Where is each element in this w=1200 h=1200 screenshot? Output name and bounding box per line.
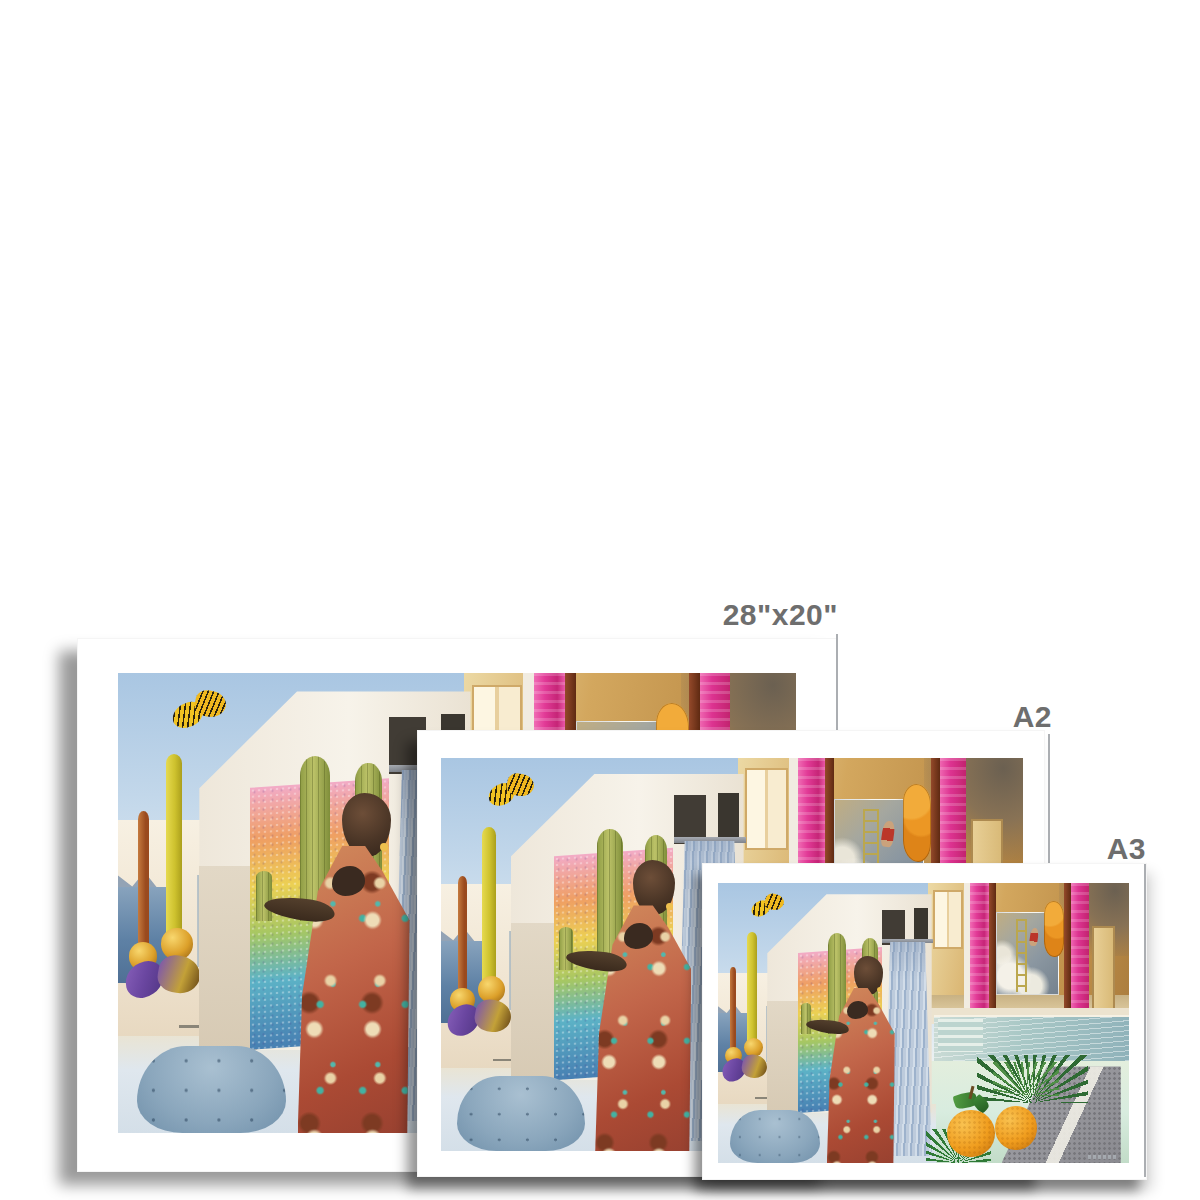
cactus-small (801, 1003, 811, 1034)
warm-window (745, 768, 788, 851)
yellow-candle (747, 932, 757, 1050)
artist-signature (1088, 1155, 1117, 1159)
purple-butterfly (447, 1000, 511, 1043)
purple-butterfly-wing-right (472, 997, 513, 1035)
pink-pillar-right (1071, 883, 1089, 1016)
cactus-small (559, 927, 573, 970)
warm-window (933, 890, 963, 949)
palm-fronds-light (993, 1062, 1059, 1096)
blue-tufted-ottoman (457, 1076, 585, 1151)
orange-fruit-1 (947, 1110, 994, 1158)
size-guide-line-a3 (1144, 864, 1146, 1177)
yellow-butterfly (751, 894, 784, 919)
size-label-28x20: 28"x20" (618, 600, 838, 630)
cactus-small (256, 871, 272, 922)
orange-fruit-2 (995, 1106, 1036, 1151)
print-size-mockup: 28"x20" A2 A3 (0, 0, 1200, 1200)
print-paper-a3 (702, 863, 1147, 1180)
building-shaded-wall (511, 923, 560, 1080)
yellow-candle (482, 827, 496, 992)
pool-steps (938, 1019, 983, 1053)
doorway-opening-2 (718, 793, 739, 842)
yellow-candle (166, 754, 182, 947)
mahogany-strip-left (989, 883, 996, 1022)
blue-tufted-ottoman (730, 1110, 820, 1163)
purple-butterfly-wing-right (740, 1053, 769, 1080)
yellow-butterfly (172, 691, 226, 732)
size-label-a3: A3 (926, 834, 1146, 864)
artwork-a3 (718, 883, 1129, 1163)
red-candle (458, 876, 467, 996)
door-frame (1092, 926, 1115, 1010)
painting-ladder (1016, 919, 1028, 992)
red-candle (138, 811, 149, 951)
pink-pillar-left (970, 883, 989, 1022)
building-shaded-wall (767, 1001, 802, 1113)
purple-butterfly (125, 956, 200, 1007)
mahogany-strip-right (1064, 883, 1071, 1016)
size-label-a2: A2 (832, 702, 1052, 732)
purple-butterfly-wing-right (155, 953, 203, 997)
orange-squiggle-sculpture (1044, 901, 1064, 957)
red-candle (730, 967, 737, 1052)
gold-earring (877, 987, 882, 992)
purple-butterfly (722, 1055, 767, 1086)
yellow-butterfly (488, 774, 535, 809)
blue-tufted-ottoman (137, 1046, 286, 1133)
doorway-opening-2 (914, 908, 929, 943)
building-shaded-wall (199, 866, 257, 1050)
